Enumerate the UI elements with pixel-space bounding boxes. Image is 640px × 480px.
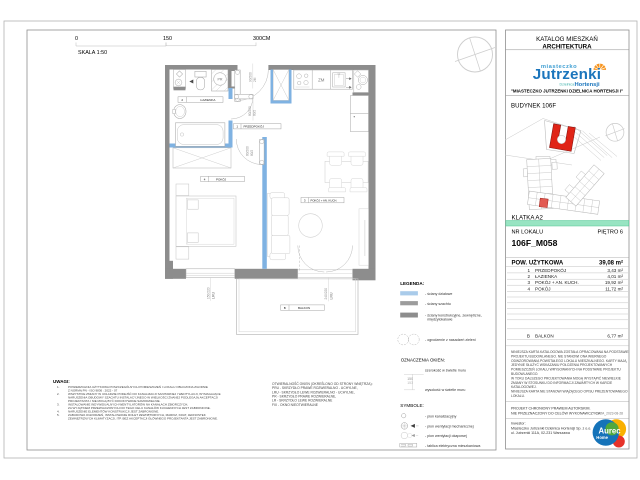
svg-text:JEDYNIE SŁUŻYĆ WSKAZANIU POŁOŻ: JEDYNIE SŁUŻYĆ WSKAZANIU POŁOŻENIA PROJE… [511,362,613,367]
svg-text:153: 153 [407,381,413,385]
svg-text:ARCHITEKTURA: ARCHITEKTURA [542,43,592,50]
svg-text:5.: 5. [57,413,60,417]
svg-text:KATALOGOWEJ.: KATALOGOWEJ. [511,385,537,389]
svg-text:240/220: 240/220 [324,288,328,300]
svg-text:POKÓJ: POKÓJ [535,285,551,291]
svg-text:BUDOWLANEGO.: BUDOWLANEGO. [511,372,538,376]
svg-text:BALKON: BALKON [535,334,554,339]
svg-text:SKALA 1:50: SKALA 1:50 [78,50,107,56]
svg-text:1.: 1. [57,385,60,389]
svg-text:międzylokalowe: międzylokalowe [427,318,452,322]
svg-text:UWAGI:: UWAGI: [53,379,70,384]
svg-text:FIX - OKNO NIEOTWIERALNE: FIX - OKNO NIEOTWIERALNE [272,403,319,407]
svg-text:80/200: 80/200 [248,106,252,116]
svg-text:LEGENDA:: LEGENDA: [400,281,424,286]
svg-text:80/2: 80/2 [250,150,254,156]
svg-text:ZMIANY W STOSUNKU DO INFORMACJ: ZMIANY W STOSUNKU DO INFORMACJI ZAWARTYC… [511,381,613,385]
svg-text:PROJEKT CHRONIONY PRAWEM AUTOR: PROJEKT CHRONIONY PRAWEM AUTORSKIM. [511,407,591,411]
svg-text:DATA_2023-08-28: DATA_2023-08-28 [596,411,623,415]
svg-text:80/2: 80/2 [252,110,256,116]
svg-text:0: 0 [75,36,78,42]
svg-text:LRU: LRU [329,292,333,299]
svg-text:B: B [284,306,286,310]
svg-text:11,72 m²: 11,72 m² [605,286,623,291]
svg-text:3.: 3. [57,402,60,406]
svg-text:NINIEJSZA KARTA NIE STANOWI WI: NINIEJSZA KARTA NIE STANOWI WIĄŻĄCEGO OP… [511,389,628,394]
svg-text:- pion wentylacji okapowej: - pion wentylacji okapowej [425,434,467,438]
svg-text:NINIEJSZA KARTA KATALOGOWA ZOS: NINIEJSZA KARTA KATALOGOWA ZOSTAŁA OPRAC… [511,350,629,354]
svg-text:4,01 m²: 4,01 m² [607,274,623,279]
svg-text:POKÓJ: POKÓJ [216,176,227,181]
svg-text:W TOKU DALSZEGO PROJEKTOWANIA: W TOKU DALSZEGO PROJEKTOWANIA MOGĄ WYSTĄ… [511,375,622,380]
svg-text:B: B [527,334,530,339]
svg-text:NIE PRZEZNACZONY DO CELÓW WYKO: NIE PRZEZNACZONY DO CELÓW WYKONAWCZYCH. [511,410,601,415]
svg-text:ODWZOROWANIA POWSTAŁEGO LOKALU: ODWZOROWANIA POWSTAŁEGO LOKALU MIESZKALN… [511,359,627,363]
svg-text:90/200: 90/200 [249,72,253,82]
svg-text:2: 2 [181,98,183,102]
svg-text:PIĘTRO 6: PIĘTRO 6 [598,229,624,235]
svg-text:39,08 m²: 39,08 m² [599,260,623,267]
svg-text:3,43 m²: 3,43 m² [607,268,623,273]
svg-text:PROJEKTU BUDOWLANEGO. NIE STAN: PROJEKTU BUDOWLANEGO. NIE STANOWI ONA WI… [511,354,607,358]
svg-text:ul. Jutrzenki 111A, 02-231 War: ul. Jutrzenki 111A, 02-231 Warszawa [511,431,570,435]
svg-text:Jutrzenki: Jutrzenki [533,66,601,83]
svg-text:300CM: 300CM [253,36,271,42]
svg-text:ŁAZIENKA: ŁAZIENKA [201,98,217,102]
svg-text:PRZEDPOKÓJ: PRZEDPOKÓJ [244,124,265,129]
svg-text:- pion wentylacji mechanicznej: - pion wentylacji mechanicznej [425,424,474,428]
svg-text:POKÓJ + AN. KUCH.: POKÓJ + AN. KUCH. [311,198,338,203]
svg-text:80/200: 80/200 [245,146,249,156]
svg-text:LOKALU.: LOKALU. [511,394,525,398]
svg-text:- ściany działowe: - ściany działowe [425,292,452,296]
svg-text:BALKON: BALKON [298,306,310,310]
svg-text:6,77 m²: 6,77 m² [607,334,623,339]
svg-text:ZM: ZM [318,78,325,83]
svg-text:- ściany szachtu: - ściany szachtu [425,302,451,306]
svg-text:Dzielnica: Dzielnica [560,82,575,86]
svg-text:19,92 m²: 19,92 m² [605,280,624,285]
svg-text:LRU: LRU [212,292,216,299]
svg-text:ZEWNĘTRZNYCH KLIMATYZACJI, ITP: ZEWNĘTRZNYCH KLIMATYZACJI, ITP. BEZ AKCE… [68,415,218,420]
svg-text:150/220: 150/220 [206,287,210,299]
svg-text:szerokość w świetle muru: szerokość w świetle muru [425,369,466,373]
svg-text:- ogrodzenie z nasadzeń zielen: - ogrodzenie z nasadzeń zieleni [425,338,476,342]
svg-text:3: 3 [527,280,530,285]
svg-text:SYMBOLE:: SYMBOLE: [400,403,424,408]
svg-text:Inwestor:: Inwestor: [511,422,526,426]
svg-text:2: 2 [527,274,530,279]
svg-text:POKÓJ + AN. KUCH.: POKÓJ + AN. KUCH. [535,279,579,285]
svg-text:BUDYNEK 106F: BUDYNEK 106F [511,102,556,109]
svg-text:4: 4 [527,286,530,291]
svg-text:2.: 2. [57,392,60,396]
svg-text:2M: 2M [253,77,257,82]
svg-text:Home: Home [596,435,608,440]
svg-text:106F_M058: 106F_M058 [512,238,558,248]
svg-text:ŁAZIENKA: ŁAZIENKA [535,274,558,279]
svg-text:- tablica elektryczna mieszkan: - tablica elektryczna mieszkaniowa [425,444,480,448]
svg-text:POMIESZCZEŃ LOKALU WRYSOWANYCH: POMIESZCZEŃ LOKALU WRYSOWANYCH NA PODSTA… [511,368,621,372]
svg-text:POW. UŻYTKOWA: POW. UŻYTKOWA [512,260,564,267]
svg-text:wysokość w świetle muru: wysokość w świetle muru [425,388,465,392]
svg-text:PR: PR [218,78,223,82]
svg-text:1: 1 [527,268,530,273]
svg-text:NR LOKALU: NR LOKALU [512,229,544,235]
svg-text:"MIASTECZKO JUTRZENKI DZIELNIC: "MIASTECZKO JUTRZENKI DZIELNICA HORTENSJ… [511,88,623,93]
svg-text:KATALOG MIESZKAŃ: KATALOG MIESZKAŃ [536,36,598,43]
svg-text:150: 150 [163,36,172,42]
svg-text:PRZEDPOKÓJ: PRZEDPOKÓJ [535,267,566,273]
svg-text:Hortensji: Hortensji [575,82,601,88]
svg-text:- pion kanalizacyjny: - pion kanalizacyjny [425,414,457,418]
svg-text:Miasteczko Jutrzenki Dzielnica: Miasteczko Jutrzenki Dzielnica Hortensji… [511,426,591,430]
svg-text:OZNACZENIA OKIEN:: OZNACZENIA OKIEN: [401,357,445,362]
